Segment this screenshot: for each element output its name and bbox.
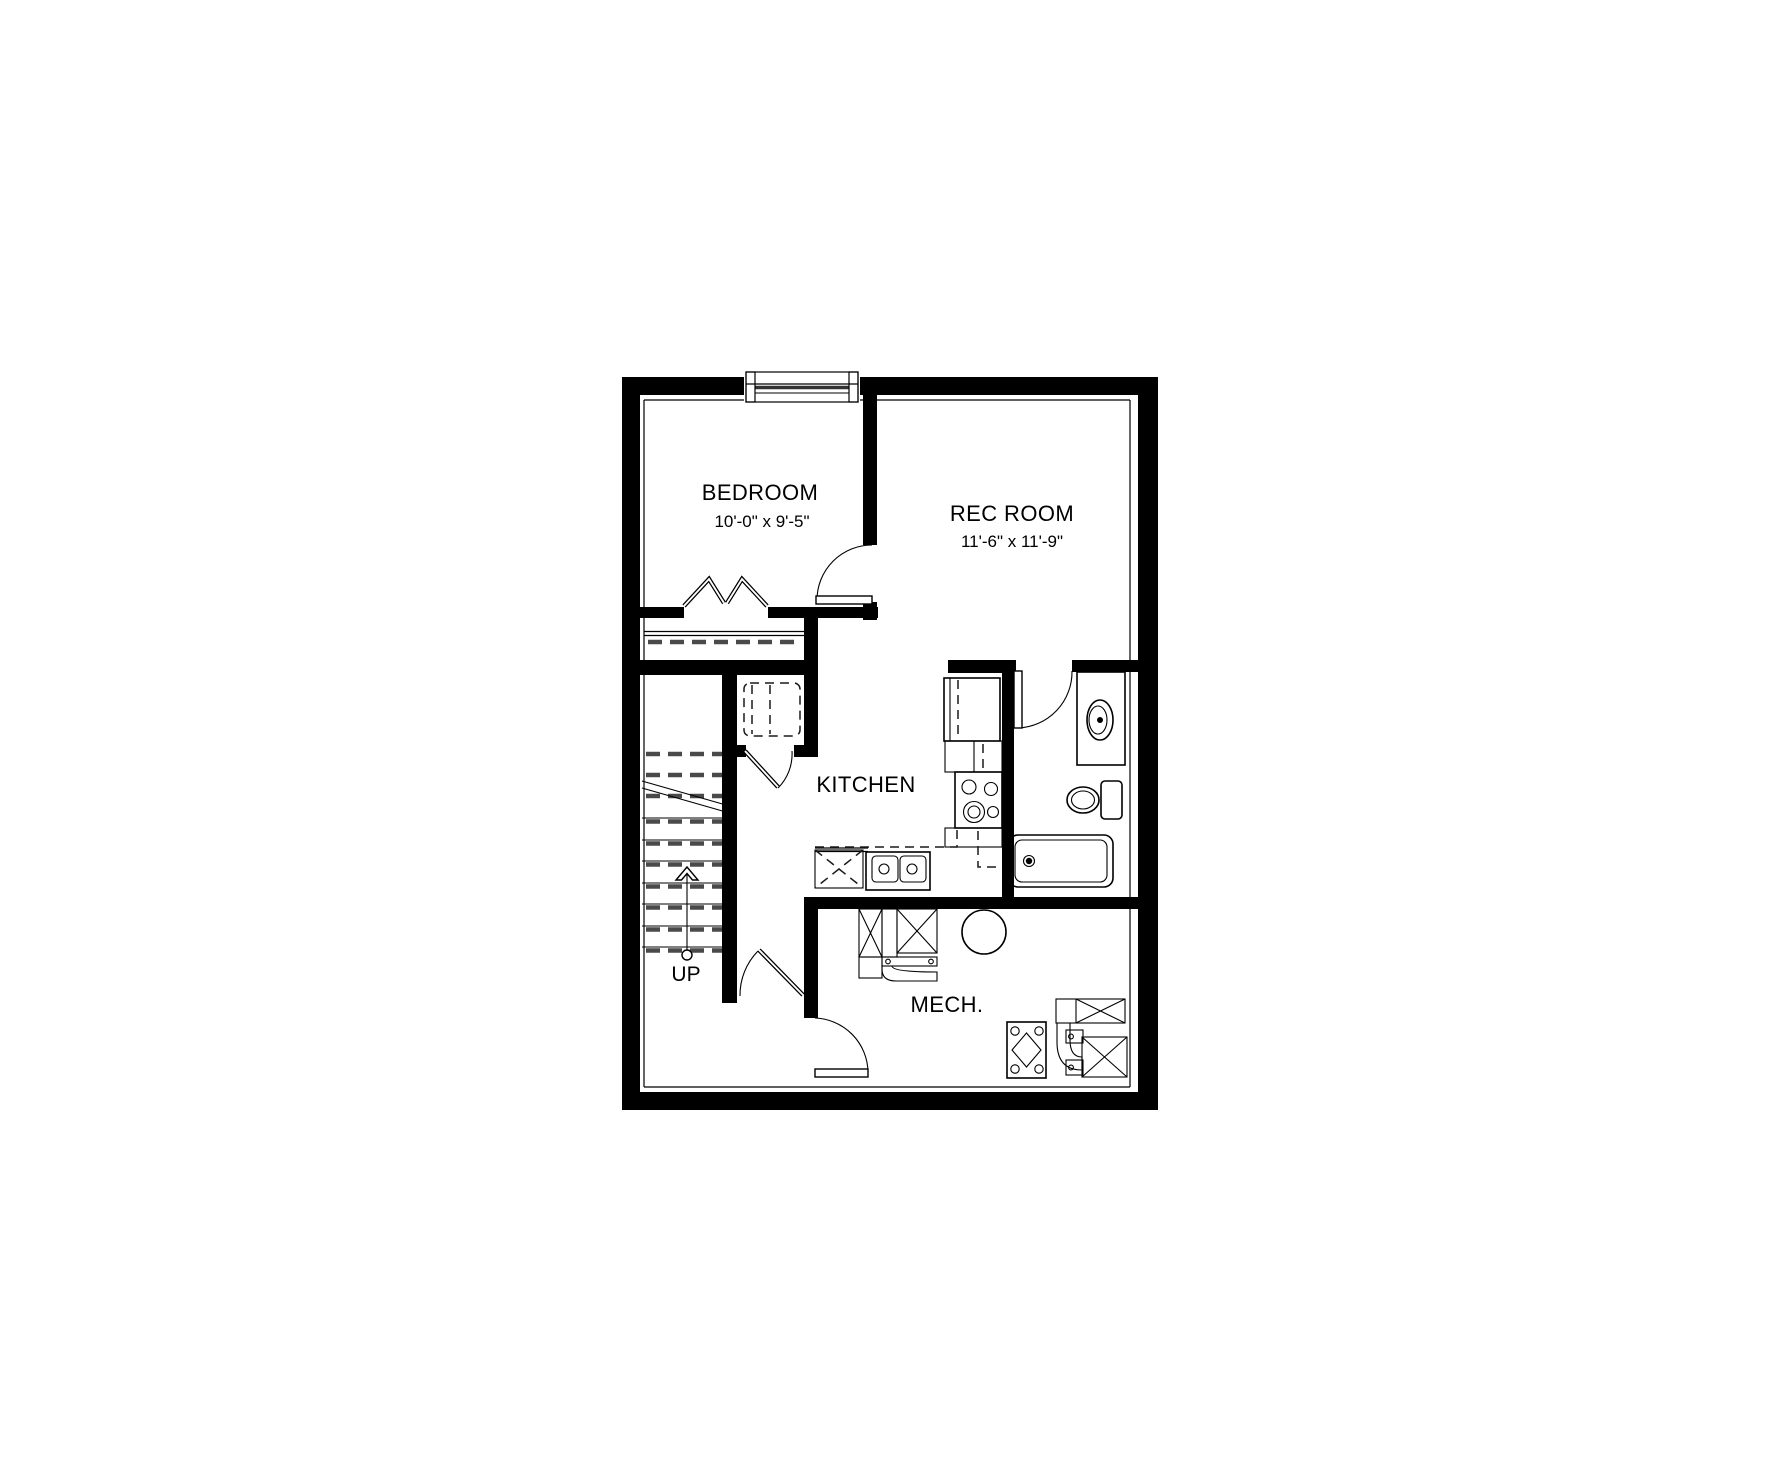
bathroom-fixtures	[1009, 671, 1125, 887]
floor-plan-page: BEDROOM 10'-0" x 9'-5" REC ROOM 11'-6" x…	[0, 0, 1780, 1480]
mech-label: MECH.	[911, 992, 984, 1017]
bathtub	[1009, 835, 1113, 887]
kitchen-counter	[815, 741, 1002, 867]
water-heater	[962, 910, 1006, 954]
mech-door	[815, 1018, 868, 1077]
furnace	[859, 909, 937, 981]
bedroom-window	[744, 371, 860, 404]
up-arrow-icon	[676, 867, 698, 960]
vanity	[1077, 672, 1125, 765]
rec-room-label: REC ROOM	[950, 501, 1074, 526]
toilet	[1067, 781, 1122, 819]
fridge	[944, 678, 1000, 741]
bedroom-label: BEDROOM	[702, 480, 818, 505]
corner-cabinet	[815, 850, 863, 888]
hrv-unit	[1056, 999, 1127, 1077]
bifold-closet-door	[684, 579, 767, 606]
stove	[955, 772, 1002, 828]
stair-header-lines	[644, 632, 804, 643]
mech-fixtures	[859, 909, 1127, 1078]
bathroom-door	[1014, 671, 1072, 728]
stairs-up-label: UP	[671, 963, 700, 986]
bedroom-dims: 10'-0" x 9'-5"	[714, 512, 809, 531]
floor-plan: BEDROOM 10'-0" x 9'-5" REC ROOM 11'-6" x…	[0, 0, 1780, 1480]
sump-pit	[1007, 1022, 1046, 1078]
kitchen-sink	[866, 852, 930, 890]
closet-door	[745, 751, 792, 788]
laundry-rough-in	[744, 683, 800, 736]
rec-room-dims: 11'-6" x 11'-9"	[961, 532, 1063, 551]
stair-treads	[642, 818, 726, 951]
landing-door	[740, 950, 803, 996]
bedroom-door	[816, 545, 872, 604]
kitchen-label: KITCHEN	[816, 772, 915, 797]
stairs	[642, 754, 726, 960]
